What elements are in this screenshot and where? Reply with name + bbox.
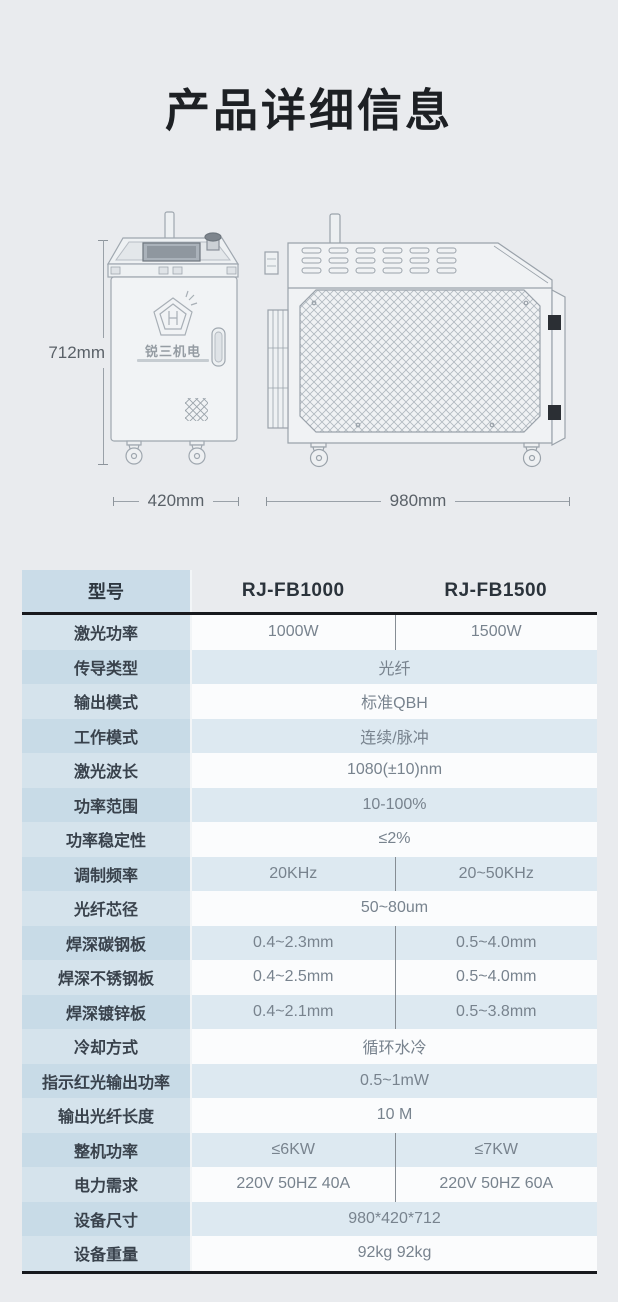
- spec-label: 设备尺寸: [22, 1202, 192, 1237]
- spec-label: 指示红光输出功率: [22, 1064, 192, 1099]
- spec-label: 整机功率: [22, 1133, 192, 1168]
- spec-row: 功率稳定性 ≤2%: [22, 822, 597, 857]
- spec-value: 50~80um: [192, 891, 597, 926]
- brand-logo-text: 锐三机电: [133, 341, 213, 360]
- spec-row: 光纤芯径 50~80um: [22, 891, 597, 926]
- spec-values: 0.4~2.5mm0.5~4.0mm: [192, 960, 597, 995]
- spec-values: 0.4~2.1mm0.5~3.8mm: [192, 995, 597, 1030]
- spec-values: 连续/脉冲: [192, 719, 597, 754]
- spec-value-model-b: ≤7KW: [395, 1133, 598, 1168]
- spec-value: 标准QBH: [192, 684, 597, 719]
- spec-row: 调制频率 20KHz20~50KHz: [22, 857, 597, 892]
- spec-label: 设备重量: [22, 1236, 192, 1271]
- spec-values: 10-100%: [192, 788, 597, 823]
- spec-header-model-a: RJ-FB1000: [192, 570, 395, 612]
- spec-label: 电力需求: [22, 1167, 192, 1202]
- spec-row: 功率范围 10-100%: [22, 788, 597, 823]
- spec-value-model-a: ≤6KW: [192, 1133, 395, 1168]
- spec-value-model-a: 0.4~2.1mm: [192, 995, 395, 1030]
- spec-values: 光纤: [192, 650, 597, 685]
- spec-values: ≤6KW≤7KW: [192, 1133, 597, 1168]
- spec-value-model-b: 0.5~3.8mm: [395, 995, 598, 1030]
- spec-value-model-b: 220V 50HZ 60A: [395, 1167, 598, 1202]
- spec-label: 冷却方式: [22, 1029, 192, 1064]
- spec-value-model-b: 1500W: [395, 615, 598, 650]
- spec-table-body: 激光功率 1000W1500W 传导类型 光纤 输出模式 标准QBH 工作模式 …: [22, 615, 597, 1271]
- spec-row: 电力需求 220V 50HZ 40A220V 50HZ 60A: [22, 1167, 597, 1202]
- spec-value: 92kg 92kg: [192, 1236, 597, 1271]
- spec-label: 焊深镀锌板: [22, 995, 192, 1030]
- spec-value: 循环水冷: [192, 1029, 597, 1064]
- dimension-tick: [569, 497, 570, 506]
- spec-row: 指示红光输出功率 0.5~1mW: [22, 1064, 597, 1099]
- spec-label: 功率范围: [22, 788, 192, 823]
- spec-row: 设备尺寸 980*420*712: [22, 1202, 597, 1237]
- spec-values: 标准QBH: [192, 684, 597, 719]
- spec-header-model-label: 型号: [22, 570, 192, 612]
- spec-value: 10 M: [192, 1098, 597, 1133]
- front-width-dimension-label: 420mm: [139, 491, 214, 511]
- spec-value-model-a: 0.4~2.3mm: [192, 926, 395, 961]
- spec-values: 0.4~2.3mm0.5~4.0mm: [192, 926, 597, 961]
- spec-label: 焊深不锈钢板: [22, 960, 192, 995]
- spec-label: 功率稳定性: [22, 822, 192, 857]
- spec-value-model-a: 20KHz: [192, 857, 395, 892]
- spec-value-model-b: 20~50KHz: [395, 857, 598, 892]
- front-width-dimension: 420mm: [113, 492, 239, 510]
- spec-row: 冷却方式 循环水冷: [22, 1029, 597, 1064]
- spec-table: 型号 RJ-FB1000 RJ-FB1500 激光功率 1000W1500W 传…: [22, 570, 597, 1274]
- spec-value: 光纤: [192, 650, 597, 685]
- spec-value-model-b: 0.5~4.0mm: [395, 960, 598, 995]
- spec-label: 输出模式: [22, 684, 192, 719]
- spec-value: 1080(±10)nm: [192, 753, 597, 788]
- spec-row: 输出光纤长度 10 M: [22, 1098, 597, 1133]
- dimension-line: [455, 501, 569, 502]
- spec-value-model-a: 220V 50HZ 40A: [192, 1167, 395, 1202]
- spec-values: 980*420*712: [192, 1202, 597, 1237]
- spec-header-model-b: RJ-FB1500: [395, 570, 598, 612]
- brand-tagline-bar: [137, 359, 209, 362]
- spec-values: ≤2%: [192, 822, 597, 857]
- side-width-dimension-label: 980mm: [381, 491, 456, 511]
- spec-values: 循环水冷: [192, 1029, 597, 1064]
- spec-values: 0.5~1mW: [192, 1064, 597, 1099]
- spec-value: 980*420*712: [192, 1202, 597, 1237]
- spec-row: 焊深碳钢板 0.4~2.3mm0.5~4.0mm: [22, 926, 597, 961]
- spec-value: 连续/脉冲: [192, 719, 597, 754]
- spec-values: 1080(±10)nm: [192, 753, 597, 788]
- spec-label: 焊深碳钢板: [22, 926, 192, 961]
- spec-values: 20KHz20~50KHz: [192, 857, 597, 892]
- height-dimension: 712mm: [40, 240, 106, 465]
- spec-value: 10-100%: [192, 788, 597, 823]
- spec-value: 0.5~1mW: [192, 1064, 597, 1099]
- spec-label: 传导类型: [22, 650, 192, 685]
- spec-row: 传导类型 光纤: [22, 650, 597, 685]
- spec-values: 1000W1500W: [192, 615, 597, 650]
- spec-label: 激光功率: [22, 615, 192, 650]
- spec-label: 激光波长: [22, 753, 192, 788]
- spec-value: ≤2%: [192, 822, 597, 857]
- spec-row: 焊深不锈钢板 0.4~2.5mm0.5~4.0mm: [22, 960, 597, 995]
- spec-values: 220V 50HZ 40A220V 50HZ 60A: [192, 1167, 597, 1202]
- dimension-line: [114, 501, 139, 502]
- spec-label: 工作模式: [22, 719, 192, 754]
- spec-label: 光纤芯径: [22, 891, 192, 926]
- spec-values: 92kg 92kg: [192, 1236, 597, 1271]
- table-bottom-border: [22, 1271, 597, 1274]
- dimension-tick: [238, 497, 239, 506]
- spec-value-model-a: 0.4~2.5mm: [192, 960, 395, 995]
- front-view-drawing: [103, 208, 243, 470]
- page-title: 产品详细信息: [0, 74, 618, 139]
- spec-label: 输出光纤长度: [22, 1098, 192, 1133]
- spec-values: 50~80um: [192, 891, 597, 926]
- spec-values: 10 M: [192, 1098, 597, 1133]
- dimension-line: [267, 501, 381, 502]
- spec-row: 焊深镀锌板 0.4~2.1mm0.5~3.8mm: [22, 995, 597, 1030]
- height-dimension-label: 712mm: [47, 338, 106, 368]
- spec-row: 激光功率 1000W1500W: [22, 615, 597, 650]
- dimension-line: [213, 501, 238, 502]
- spec-row: 工作模式 连续/脉冲: [22, 719, 597, 754]
- product-detail-page: 产品详细信息: [0, 0, 618, 1302]
- spec-value-model-b: 0.5~4.0mm: [395, 926, 598, 961]
- spec-label: 调制频率: [22, 857, 192, 892]
- spec-row: 输出模式 标准QBH: [22, 684, 597, 719]
- spec-value-model-a: 1000W: [192, 615, 395, 650]
- side-width-dimension: 980mm: [266, 492, 570, 510]
- spec-row: 整机功率 ≤6KW≤7KW: [22, 1133, 597, 1168]
- dimension-tick: [98, 464, 108, 465]
- spec-row: 设备重量 92kg 92kg: [22, 1236, 597, 1271]
- spec-table-header: 型号 RJ-FB1000 RJ-FB1500: [22, 570, 597, 612]
- spec-row: 激光波长 1080(±10)nm: [22, 753, 597, 788]
- side-view-drawing: [262, 210, 582, 470]
